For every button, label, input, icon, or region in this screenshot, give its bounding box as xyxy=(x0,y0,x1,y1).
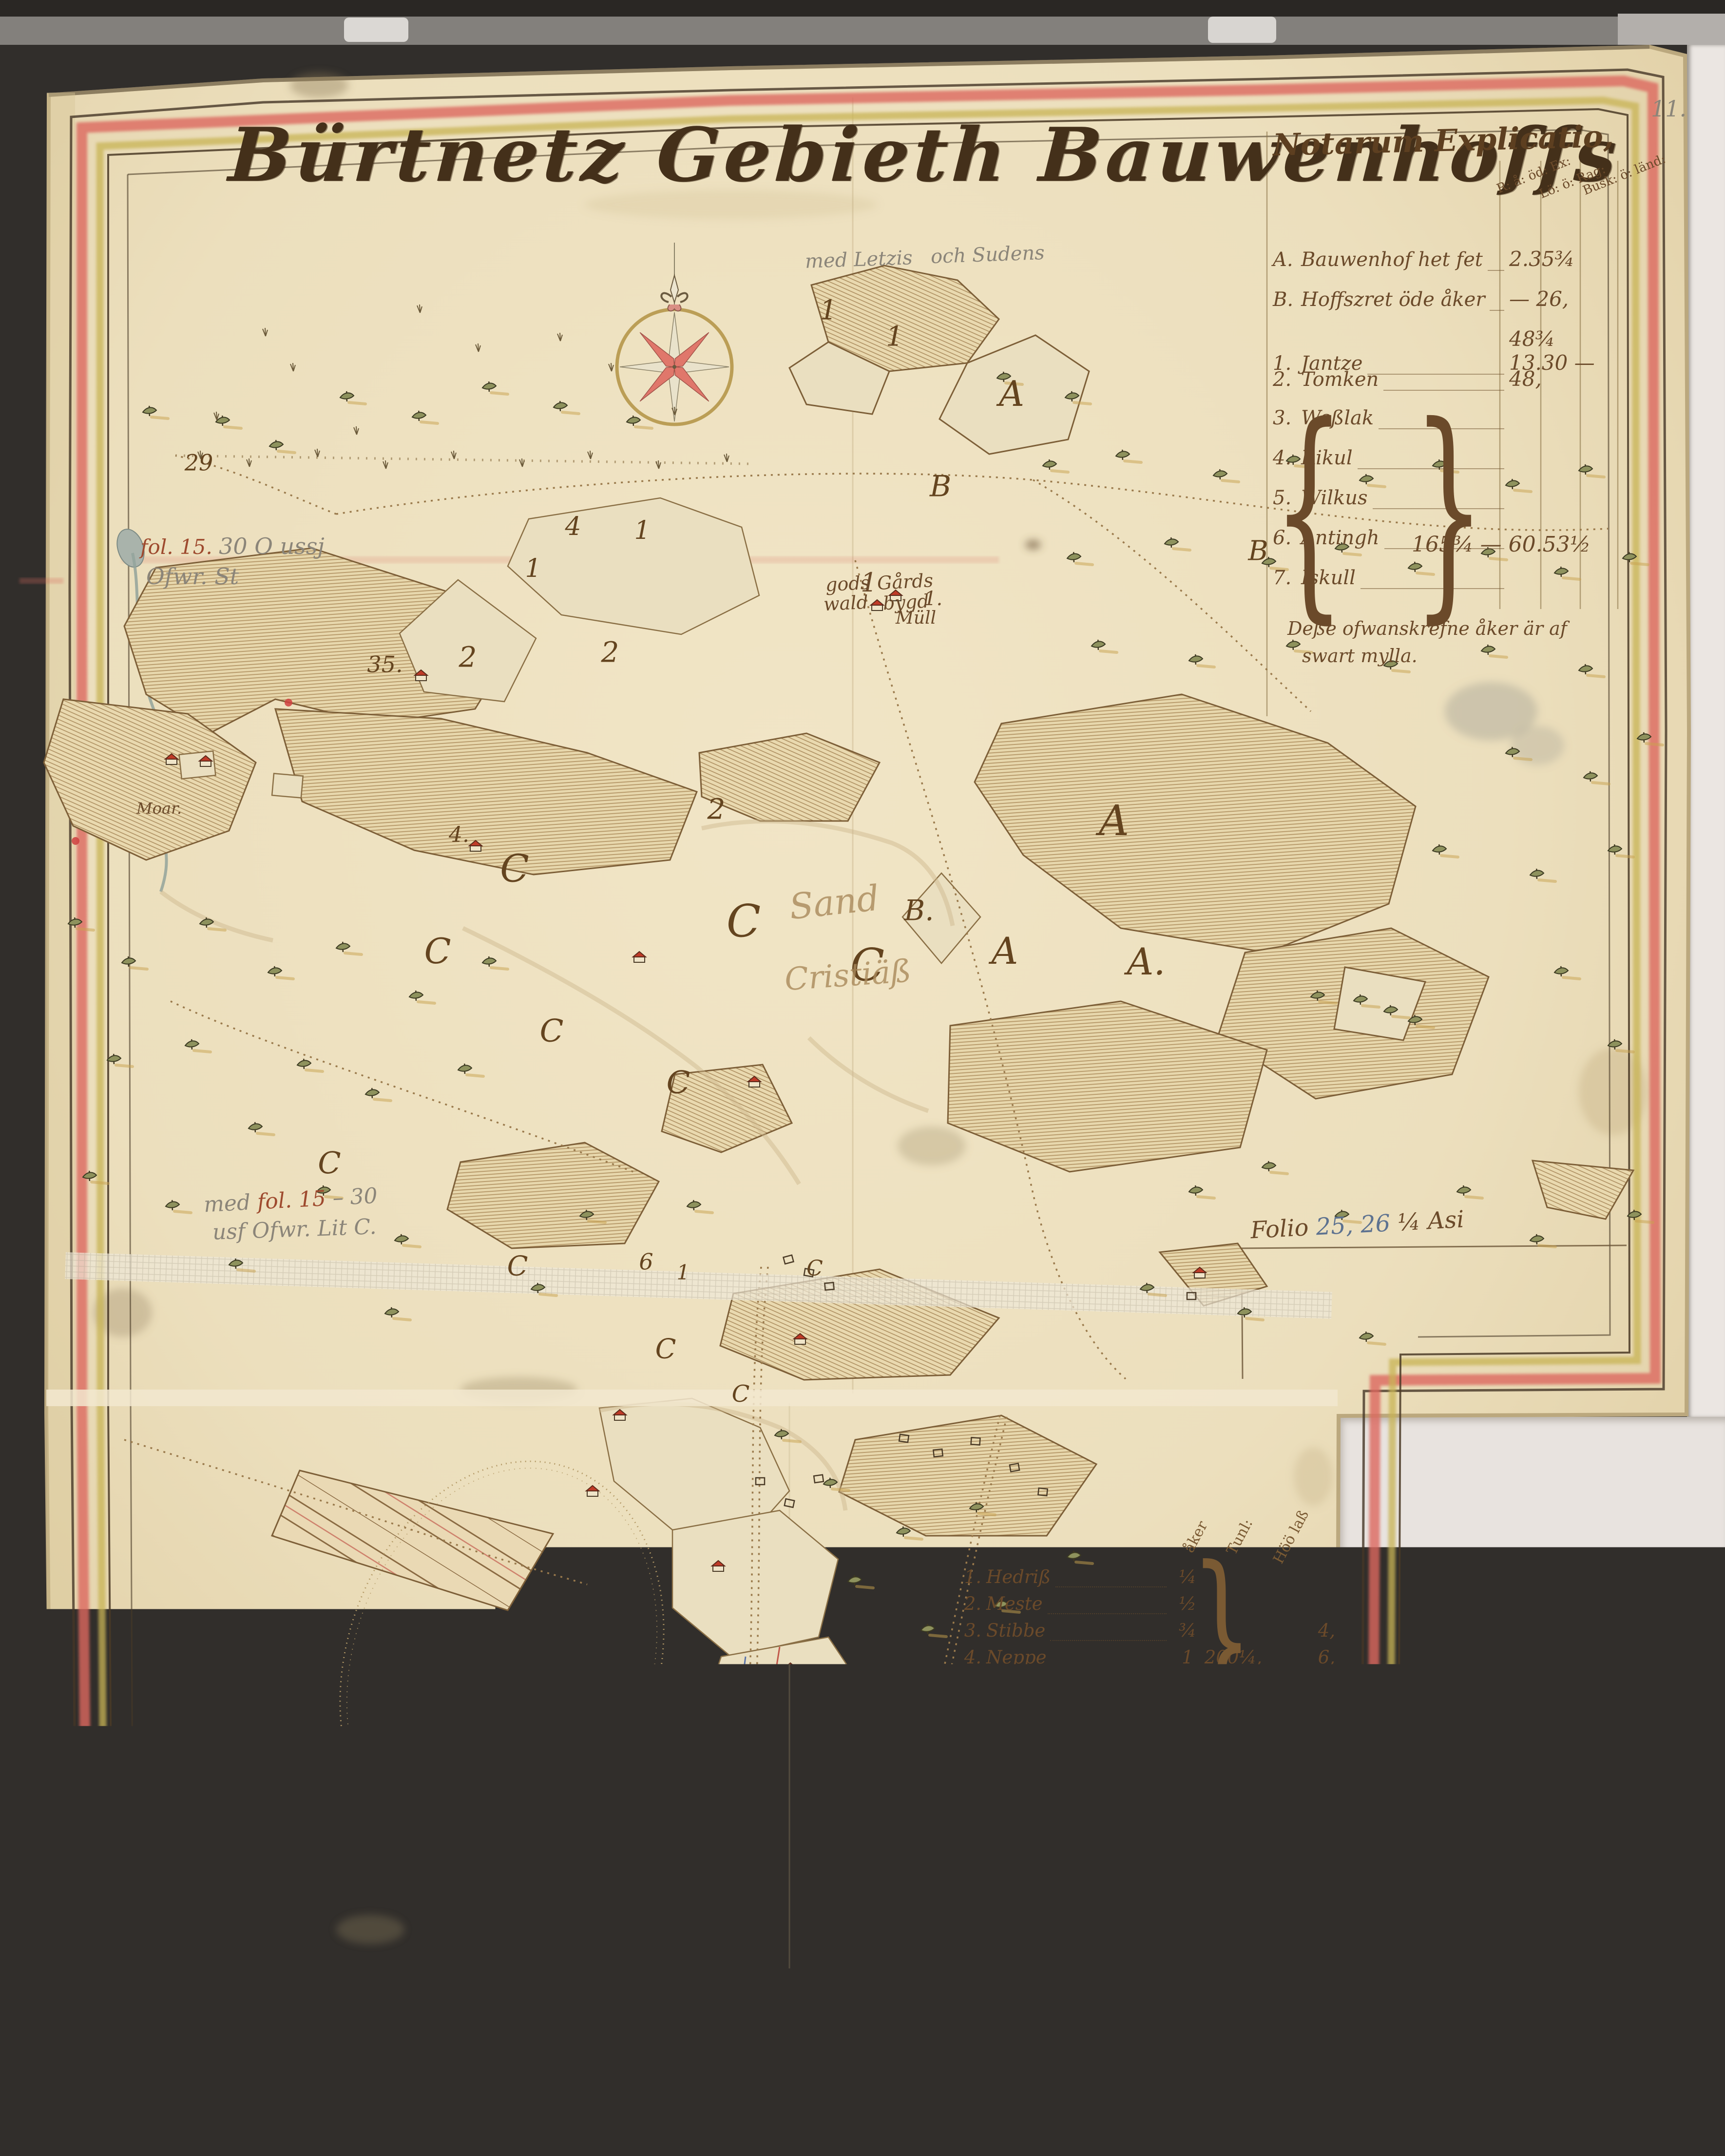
ruler-tick xyxy=(1429,2031,1431,2048)
ruler-format-bar xyxy=(1485,2104,1491,2141)
ruler-tick xyxy=(822,2031,823,2059)
ruler-tick xyxy=(1574,2111,1575,2141)
ruler-tick xyxy=(1111,2111,1112,2141)
ruler-tick xyxy=(243,2111,244,2141)
bottom-black-strip xyxy=(0,2143,1725,2156)
legend-note-line: swart mylla. xyxy=(1302,645,1418,667)
ruler-zero-mark xyxy=(877,2031,883,2141)
ruler-number: 6 xyxy=(702,2062,711,2081)
ruler-format-label: A3 xyxy=(1472,2079,1505,2108)
ruler-tick xyxy=(1400,2111,1402,2141)
label-gods-num2: 1. xyxy=(924,588,942,610)
legend-row-value: 48, xyxy=(1509,367,1614,391)
village-leader-line xyxy=(1050,1628,1167,1641)
ruler-format-label: A4 xyxy=(1293,2079,1326,2108)
map-artwork xyxy=(0,0,1725,2156)
ruler-tick xyxy=(1314,2031,1315,2048)
ruler-tick xyxy=(966,2031,968,2048)
ruler-tick xyxy=(735,2031,736,2048)
village-row-name: Hedriß xyxy=(986,1566,1051,1587)
scale-tick-label: 150. xyxy=(350,1797,384,1814)
annotation-med-pre: med xyxy=(203,1190,258,1218)
annotation-folio-tail: ¼ Asi xyxy=(1397,1206,1465,1237)
ruler-tick xyxy=(1227,2031,1228,2059)
ruler-tick xyxy=(1516,2111,1517,2141)
ruler-format-bar xyxy=(18,2031,23,2076)
village-table-row: 4.Neppe1200¼,6, xyxy=(950,1647,1335,1668)
ruler-tick xyxy=(1545,2031,1547,2048)
ruler-tick xyxy=(850,2031,852,2048)
ruler-tick xyxy=(474,2111,476,2141)
annotation-fol15-red: fol. 15. xyxy=(140,535,212,559)
ruler-tick xyxy=(1284,2031,1286,2059)
ruler-number: 2 xyxy=(818,2062,827,2081)
ruler-tick xyxy=(532,2111,534,2141)
ruler-tick xyxy=(474,2031,476,2059)
ruler-number: 14 xyxy=(1276,2062,1295,2081)
ruler-tick xyxy=(1371,2031,1373,2048)
legend-row: A.Bauwenhof het fet2.35¾ xyxy=(1273,247,1614,271)
ruler-tick xyxy=(1284,2111,1286,2141)
ruler-tick xyxy=(590,2031,592,2059)
ruler-tick xyxy=(995,2031,997,2059)
ruler-tick xyxy=(1198,2031,1199,2048)
ruler-tick xyxy=(1458,2111,1460,2141)
ruler-edge xyxy=(0,2029,8,2143)
ruler-number: 18 xyxy=(350,2062,368,2081)
surveyor-signature: Gabriel. Olivant Anno 1681. xyxy=(117,1901,482,1931)
ruler-tick xyxy=(69,2031,70,2059)
ruler-tick xyxy=(648,2031,649,2059)
village-row-no: 7. xyxy=(950,1727,981,1748)
ruler-format-bar xyxy=(1307,2104,1313,2141)
scanned-map-page: Bürtnetz Gebieth Bauwenhoffs 11. Notarum… xyxy=(0,0,1725,2156)
ruler-format-bar xyxy=(1485,2031,1491,2076)
ruler-tick xyxy=(1632,2031,1633,2059)
ruler-tick xyxy=(1256,2031,1257,2048)
ruler-format-bar xyxy=(1307,2031,1313,2076)
ruler-number: 22 xyxy=(1508,2062,1526,2081)
ruler-tick xyxy=(98,2031,99,2048)
annotation-compass-left: med Letzis xyxy=(805,247,913,273)
ruler-tick xyxy=(213,2031,215,2048)
ruler-tick xyxy=(677,2031,678,2048)
ruler-tick xyxy=(937,2031,939,2059)
red-dot xyxy=(285,699,292,706)
ruler-tick xyxy=(1169,2111,1170,2141)
annotation-med-red: fol. 15 xyxy=(257,1186,326,1214)
village-row-no: 6. xyxy=(950,1700,981,1721)
ruler-tick xyxy=(69,2111,70,2141)
ruler-tick xyxy=(243,2031,244,2059)
legend-row-value: 2.35¾ xyxy=(1509,247,1614,271)
notarum-explicatio-table: Notarum Explicatio, A.Bauwenhof het fet2… xyxy=(1273,123,1614,158)
ruler-tick xyxy=(1111,2031,1112,2059)
ruler-tick xyxy=(764,2031,765,2059)
ruler-number: 6 xyxy=(1049,2062,1058,2081)
ruler-tick xyxy=(1082,2031,1083,2048)
label-gods-num: 1 xyxy=(861,567,877,598)
ruler-tick xyxy=(185,2031,186,2059)
ruler-number: 20 xyxy=(292,2062,310,2081)
ruler-format-bar xyxy=(447,2031,453,2076)
ruler-tick xyxy=(1632,2111,1633,2141)
ruler-number: 20 xyxy=(1450,2062,1468,2081)
legend-note-line: Deße ofwanskrefne åker är af xyxy=(1287,618,1567,639)
pencil-532: 532 xyxy=(1658,1908,1679,1942)
ruler-tick xyxy=(445,2031,447,2048)
ruler-tick xyxy=(329,2031,331,2048)
ruler-tick xyxy=(1690,2031,1691,2059)
ruler-tick xyxy=(1719,2031,1720,2048)
legend-group-value: 165¾ — 60.53½ xyxy=(1412,532,1591,557)
ruler-tick xyxy=(706,2031,707,2059)
ruler-tick xyxy=(416,2111,418,2141)
ruler-tick xyxy=(1024,2031,1026,2048)
ruler-format-bar xyxy=(18,2104,23,2141)
ruler-tick xyxy=(1053,2111,1054,2141)
village-leader-line xyxy=(1052,1655,1167,1668)
village-table-row: 6.Jutük½1½ xyxy=(950,1700,1335,1721)
ruler-number: 24 xyxy=(1566,2062,1584,2081)
ruler-tick xyxy=(1169,2031,1170,2059)
ruler-tick xyxy=(1140,2031,1141,2048)
village-row-no: 5. xyxy=(950,1674,981,1695)
ruler-tick xyxy=(503,2031,504,2048)
ruler-tick xyxy=(822,2111,823,2141)
village-row-no: 4. xyxy=(950,1647,981,1668)
village-row-name: Stibbe xyxy=(986,1620,1045,1641)
annotation-fol15-pencil: 30 O ussj xyxy=(219,533,325,559)
annotation-med-post: – 30 xyxy=(325,1183,378,1211)
scale-tick-label: 500. xyxy=(177,1797,211,1814)
ruler-number: 2 xyxy=(933,2062,942,2081)
annotation-compass-right: och Sudens xyxy=(930,242,1045,268)
ruler-tick xyxy=(995,2111,997,2141)
village-row-no: 2. xyxy=(950,1593,981,1614)
ruler-format-label: A3 xyxy=(256,2079,289,2108)
ruler-number: 12 xyxy=(1218,2062,1237,2081)
village-table-row: 7.Murr Matz½1¾, xyxy=(950,1727,1335,1748)
ruler-tick xyxy=(358,2111,360,2141)
village-row-no: 3. xyxy=(950,1620,981,1641)
annotation-fol15-line2: Ofwr. St xyxy=(146,563,239,590)
village-row-c3: 1½ xyxy=(1262,1700,1335,1721)
village-table-row: 1.Hedriß¼ xyxy=(950,1566,1335,1587)
ruler-tick xyxy=(1574,2031,1575,2059)
ruler-tick xyxy=(908,2031,910,2048)
ruler-tick xyxy=(1516,2031,1517,2059)
village-row-name: Jutük xyxy=(986,1700,1035,1721)
ruler-number: 8 xyxy=(1107,2062,1116,2081)
ruler-number: 12 xyxy=(523,2062,542,2081)
scale-label: Scala Ulnarum :~ xyxy=(149,1866,456,1903)
ruler-number: 28 xyxy=(60,2062,79,2081)
legend-row: B.Hoffszret öde åker— 26, xyxy=(1273,287,1614,311)
ruler-tick xyxy=(590,2111,592,2141)
ruler-number: 14 xyxy=(465,2062,484,2081)
ruler-number: 26 xyxy=(1623,2062,1642,2081)
village-row-name: Litgull xyxy=(986,1674,1046,1695)
ruler-tick xyxy=(561,2031,562,2048)
ruler-tick xyxy=(156,2031,157,2048)
village-row-name: Murr Matz xyxy=(986,1727,1085,1748)
ruler-number: 10 xyxy=(581,2062,600,2081)
ruler-format-label: A4 xyxy=(434,2079,467,2108)
ruler-format-label: A2 xyxy=(4,2079,37,2108)
village-row-c3: 1¾, xyxy=(1262,1727,1335,1748)
ruler-format-bar xyxy=(447,2104,453,2141)
ruler-number: 4 xyxy=(760,2062,769,2081)
scale-tick-label: 1000. xyxy=(259,1797,303,1814)
ruler-tick xyxy=(1400,2031,1402,2059)
legend-row-no: B. xyxy=(1273,288,1301,311)
ruler-tick xyxy=(1661,2031,1662,2048)
legend-row-no: A. xyxy=(1273,248,1301,271)
ruler-tick xyxy=(416,2031,418,2059)
ruler-tick xyxy=(532,2031,534,2059)
village-row-c3: 4, xyxy=(1262,1620,1335,1641)
ruler-tick xyxy=(127,2031,128,2059)
ruler-number: 10 xyxy=(1160,2062,1179,2081)
ruler-tick xyxy=(619,2031,620,2048)
ruler-number: 16 xyxy=(1334,2062,1352,2081)
ruler-tick xyxy=(387,2031,389,2048)
ruler-tick xyxy=(706,2111,707,2141)
legend-row-name: Bauwenhof het fet xyxy=(1301,248,1483,271)
ruler-number: 16 xyxy=(408,2062,426,2081)
ruler-number: 22 xyxy=(234,2062,252,2081)
ruler-format-bar xyxy=(269,2104,275,2141)
village-leader-line xyxy=(1090,1736,1167,1748)
legend-leader-line xyxy=(1490,297,1504,311)
photographic-ruler: 3028262422201816141210864224681012141618… xyxy=(0,2029,1725,2143)
village-row-name: Meste xyxy=(986,1593,1043,1614)
ruler-tick xyxy=(937,2111,939,2141)
annotation-fol15: fol. 15. 30 O ussj xyxy=(140,533,325,559)
village-table-row: 3.Stibbe¾4, xyxy=(950,1620,1335,1641)
village-leader-line xyxy=(1055,1575,1167,1587)
village-leader-line xyxy=(1048,1602,1167,1614)
ruler-tick xyxy=(358,2031,360,2059)
ruler-format-bar xyxy=(269,2031,275,2076)
ruler-tick xyxy=(185,2111,186,2141)
village-row-name: Neppe xyxy=(986,1647,1047,1668)
red-dot xyxy=(72,837,79,845)
legend-leader-line xyxy=(1488,257,1504,271)
ruler-tick xyxy=(40,2031,41,2048)
brace: } xyxy=(1191,1542,1253,1737)
ruler-number: 4 xyxy=(991,2062,1000,2081)
annotation-folio-word: Folio xyxy=(1250,1214,1309,1244)
ruler-tick xyxy=(648,2111,649,2141)
ruler-number: 8 xyxy=(644,2062,653,2081)
ruler-tick xyxy=(1342,2111,1344,2141)
ruler-tick xyxy=(127,2111,128,2141)
ruler-tick xyxy=(764,2111,765,2141)
ruler-number: 24 xyxy=(176,2062,194,2081)
paragraph-line: Deße Bönders Jordemån består öfr alt xyxy=(959,1749,1311,1816)
ruler-tick xyxy=(301,2031,302,2059)
page-number: 11. xyxy=(1651,95,1687,122)
brace-left: { xyxy=(1273,396,1346,625)
ruler-tick xyxy=(1603,2031,1605,2048)
village-row-c3: 6, xyxy=(1262,1647,1335,1668)
ruler-tick xyxy=(1458,2031,1460,2059)
legend-row-name: Hoffszret öde åker xyxy=(1301,288,1485,311)
village-leader-line xyxy=(1040,1709,1167,1721)
ruler-tick xyxy=(1690,2111,1691,2141)
village-table-row: 2.Meste½ xyxy=(950,1593,1335,1614)
label-mull: Müll xyxy=(896,608,936,628)
legend-row-value: — 26, xyxy=(1509,287,1614,311)
label-moar: Moar. xyxy=(136,799,182,818)
description-paragraph: Deße Bönders Jordemån består öfr alt af … xyxy=(959,1749,1314,1904)
ruler-tick xyxy=(11,2111,13,2141)
ruler-tick xyxy=(1342,2031,1344,2059)
ruler-tick xyxy=(1053,2031,1054,2059)
village-row-no: 1. xyxy=(950,1566,981,1587)
ruler-tick xyxy=(11,2031,13,2059)
brace-right: } xyxy=(1413,396,1486,625)
ruler-tick xyxy=(301,2111,302,2141)
ruler-tick xyxy=(792,2031,794,2048)
village-leader-line xyxy=(1051,1682,1167,1695)
ruler-number: 28 xyxy=(1681,2062,1700,2081)
ruler-number: 26 xyxy=(118,2062,137,2081)
annotation-folio-numbers: 25, 26 xyxy=(1315,1209,1391,1240)
ruler-number: 18 xyxy=(1392,2062,1410,2081)
village-table-row: 5.Litgull14½ xyxy=(950,1674,1335,1695)
ruler-tick xyxy=(1227,2111,1228,2141)
sheet-seam xyxy=(46,1390,1338,1406)
village-row-c3: 4½ xyxy=(1262,1674,1335,1695)
